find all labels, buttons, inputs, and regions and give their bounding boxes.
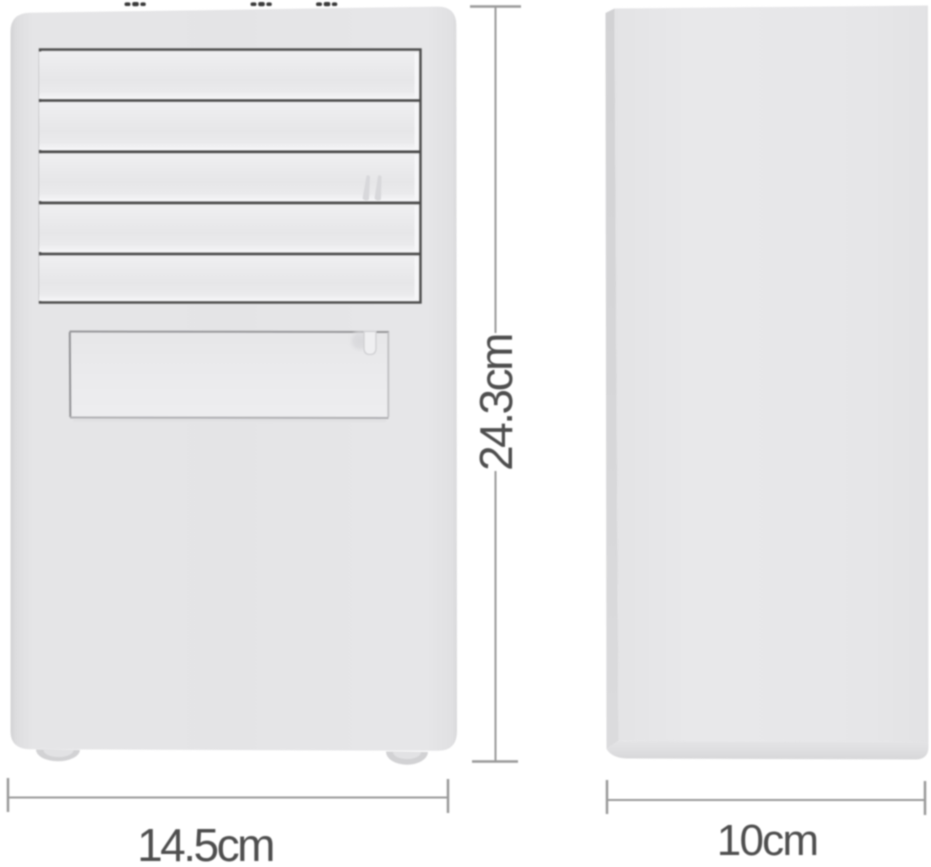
svg-text:14.5cm: 14.5cm [137, 819, 273, 867]
svg-text:24.3cm: 24.3cm [470, 335, 522, 471]
svg-text:10cm: 10cm [717, 816, 817, 865]
